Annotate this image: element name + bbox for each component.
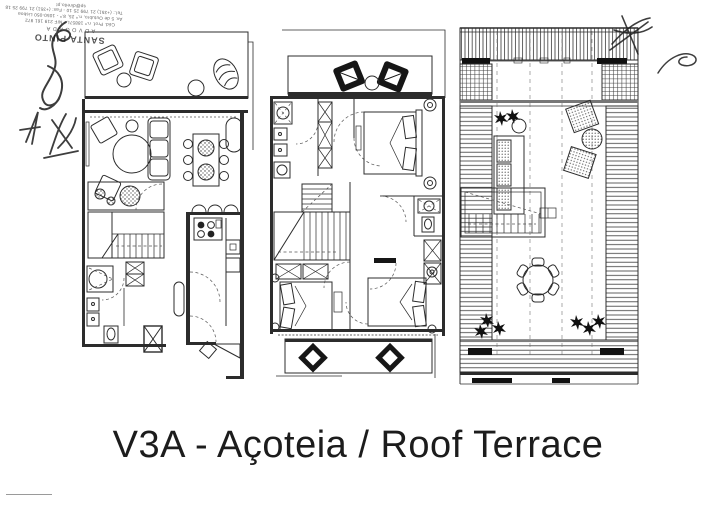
handwritten-signature bbox=[40, 22, 70, 109]
handwritten-star bbox=[610, 16, 652, 54]
handwritten-mark-41 bbox=[20, 112, 78, 158]
scanned-floorplan-page: SANTA PINTO ADVOGADA Céd. Prof. n.º 1885… bbox=[0, 0, 716, 506]
plan-caption: V3A - Açoteia / Roof Terrace bbox=[0, 424, 716, 467]
handwritten-squiggle bbox=[658, 54, 696, 73]
footer-scan-line bbox=[6, 494, 52, 495]
